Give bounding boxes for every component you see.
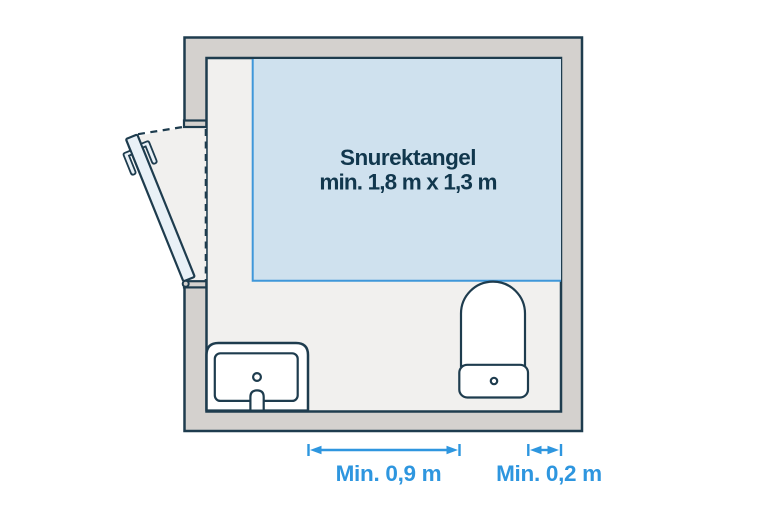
svg-text:Min. 0,9 m: Min. 0,9 m	[336, 461, 442, 486]
svg-text:Snurektangel: Snurektangel	[340, 145, 476, 170]
svg-text:min. 1,8 m x 1,3 m: min. 1,8 m x 1,3 m	[319, 170, 496, 195]
svg-text:Min. 0,2 m: Min. 0,2 m	[496, 461, 602, 486]
